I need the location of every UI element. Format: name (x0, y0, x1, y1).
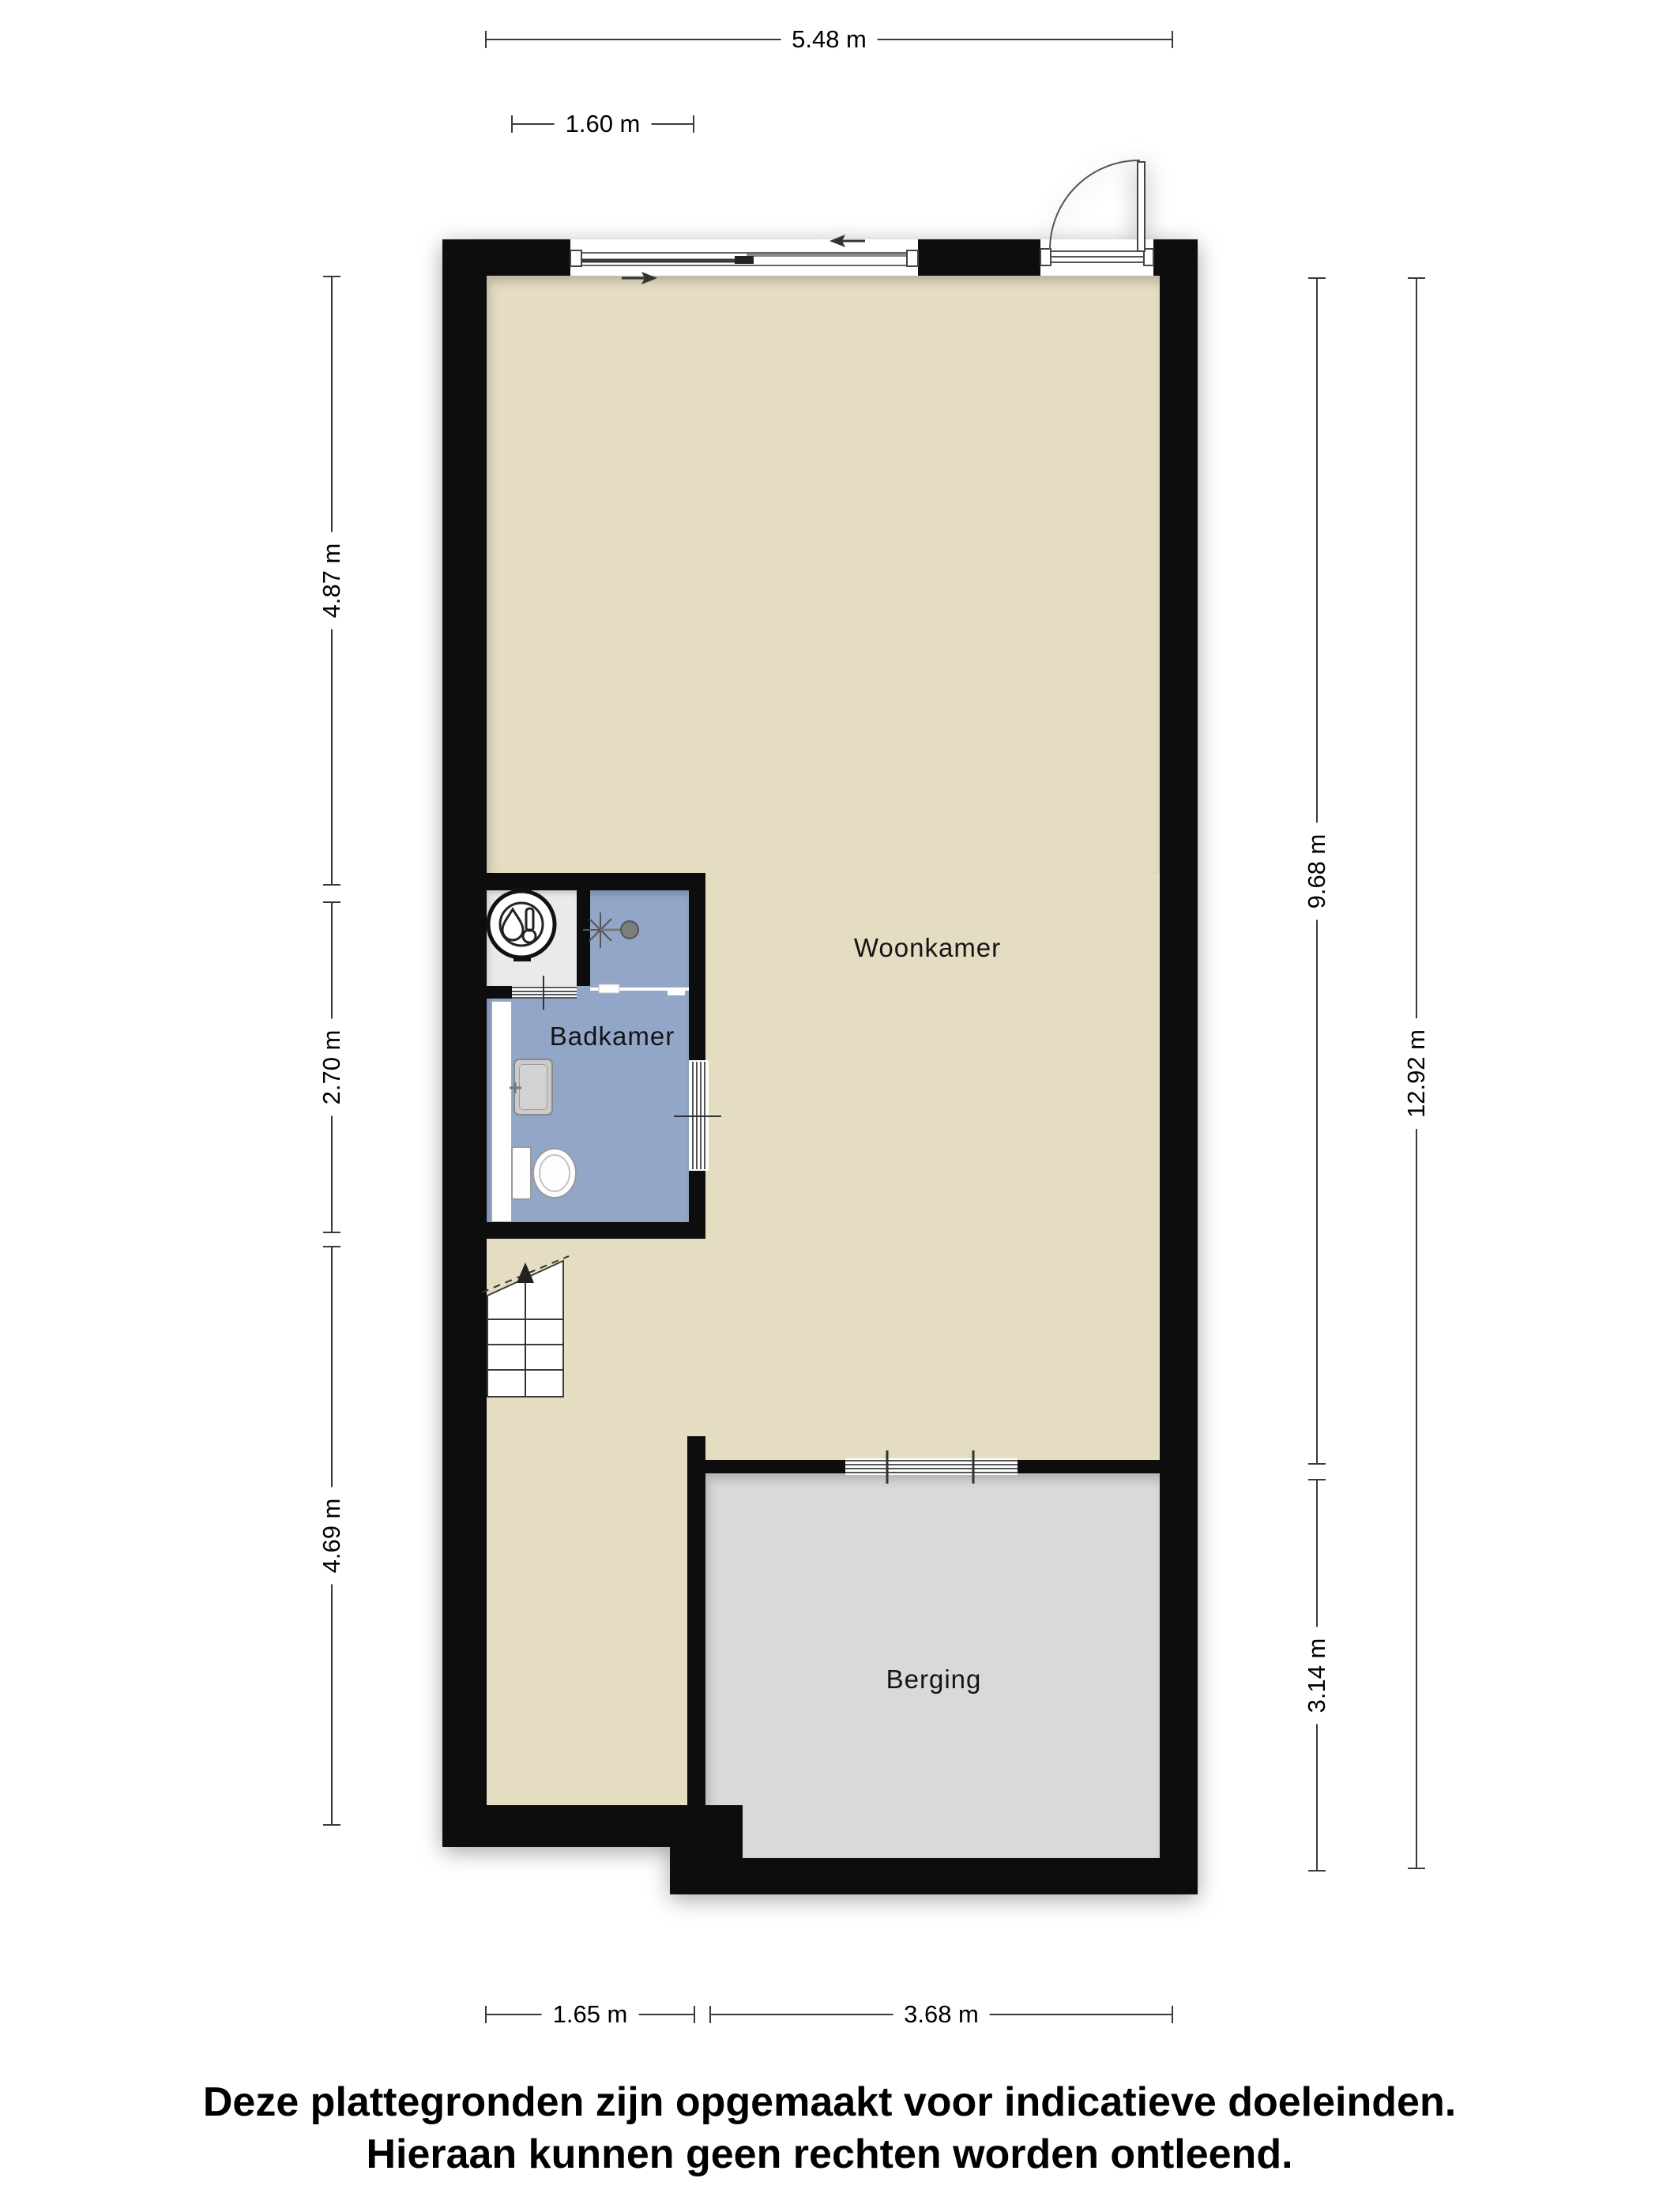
room-label-badkamer: Badkamer (550, 1021, 675, 1051)
closet-louvre-door-icon (512, 976, 577, 1010)
disclaimer-line-2: Hieraan kunnen geen rechten worden ontle… (0, 2128, 1659, 2180)
dimension-label: 4.69 m (316, 1488, 348, 1585)
slide-direction-arrow-left (829, 235, 865, 247)
dimension-label: 3.14 m (1301, 1627, 1333, 1724)
dimension-label: 5.48 m (781, 24, 878, 55)
dimension-label: 9.68 m (1301, 822, 1333, 920)
dimension-right-total: 12.92 m (1416, 278, 1417, 1868)
dimension-left-middle: 2.70 m (331, 902, 333, 1232)
toilet-icon (512, 1147, 576, 1199)
dimension-left-upper: 4.87 m (331, 276, 333, 885)
berging-sliding-door-icon (845, 1450, 1018, 1484)
dimension-right-upper: 9.68 m (1316, 278, 1318, 1464)
stairs-direction-arrow (517, 1262, 534, 1283)
entry-door-icon (1040, 160, 1153, 265)
boiler-icon (488, 887, 555, 961)
room-label-woonkamer: Woonkamer (854, 933, 1001, 963)
dimension-label: 2.70 m (316, 1019, 348, 1116)
sliding-window-icon (570, 235, 918, 284)
dimension-bottom-right: 3.68 m (710, 2014, 1172, 2015)
bathroom-door-icon (674, 1062, 721, 1169)
dimension-label: 12.92 m (1401, 1018, 1432, 1128)
dimension-label: 3.68 m (893, 1999, 990, 2030)
dimension-bottom-left: 1.65 m (486, 2014, 694, 2015)
dimension-top-total: 5.48 m (486, 39, 1172, 40)
dimension-label: 1.60 m (555, 108, 652, 140)
stairs-up-icon (482, 1256, 569, 1397)
disclaimer: Deze plattegronden zijn opgemaakt voor i… (0, 2076, 1659, 2180)
disclaimer-line-1: Deze plattegronden zijn opgemaakt voor i… (0, 2076, 1659, 2128)
room-label-berging: Berging (886, 1665, 982, 1695)
faucet-icon (510, 1082, 521, 1093)
dimension-right-lower: 3.14 m (1316, 1480, 1318, 1871)
shower-icon (583, 912, 689, 995)
dimension-label: 1.65 m (542, 1999, 639, 2030)
slide-direction-arrow-right (622, 272, 657, 284)
dimension-label: 4.87 m (316, 532, 348, 630)
dimension-left-lower: 4.69 m (331, 1247, 333, 1825)
dimension-top-window: 1.60 m (512, 123, 694, 125)
